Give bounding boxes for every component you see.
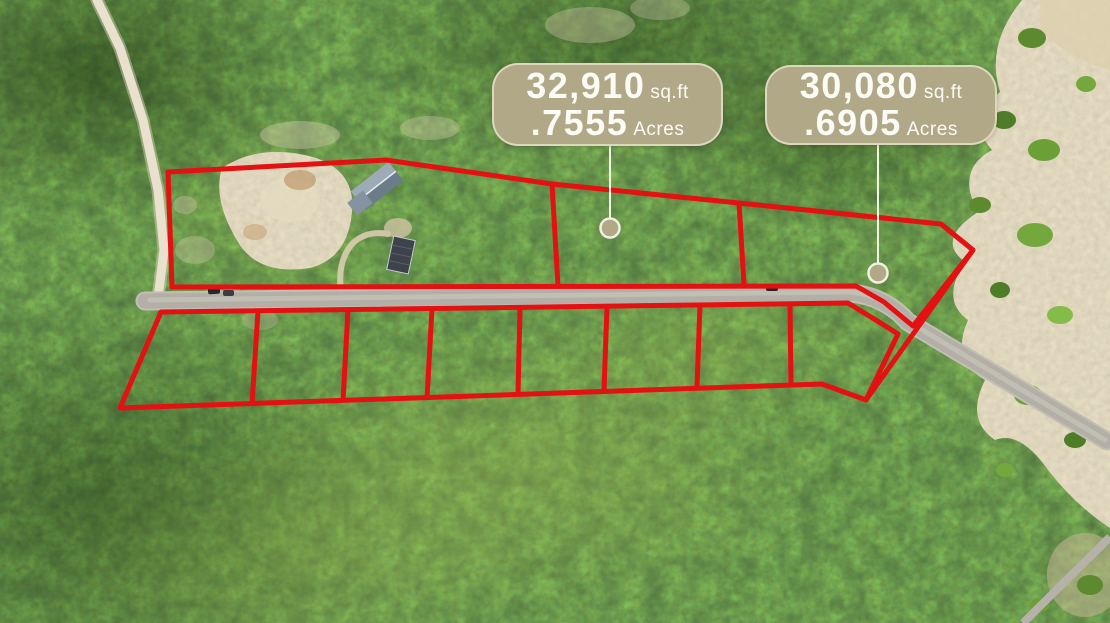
lot-1-acres-value: .7555	[531, 105, 629, 142]
dirt-mound	[243, 224, 267, 240]
yard-clearing	[384, 218, 412, 238]
lot-divider-south-7	[790, 304, 791, 384]
lot-size-label-1: 32,910 sq.ft .7555 Acres	[492, 63, 723, 146]
lot-1-acres-unit: Acres	[633, 120, 684, 139]
shrub	[1076, 76, 1096, 92]
shrub	[969, 197, 991, 213]
leader-dot-1	[601, 219, 620, 238]
lot-divider-south-4	[518, 308, 520, 393]
leader-dot-2	[869, 264, 888, 283]
lot-1-area-value: 32,910	[526, 68, 645, 105]
lot-divider-south-5	[604, 307, 607, 390]
shrub	[996, 463, 1014, 477]
lot-2-area-unit: sq.ft	[924, 83, 962, 102]
lot-1-area-unit: sq.ft	[650, 83, 688, 102]
lot-2-acres-unit: Acres	[907, 120, 958, 139]
lot-1-acres: .7555 Acres	[531, 105, 685, 142]
lot-2-acres-value: .6905	[804, 105, 902, 142]
car	[223, 290, 234, 296]
shrub	[990, 282, 1010, 298]
lot-2-acres: .6905 Acres	[804, 105, 958, 142]
shrub	[1047, 306, 1073, 324]
shrub	[1018, 28, 1046, 48]
lot-size-label-2: 30,080 sq.ft .6905 Acres	[765, 65, 997, 145]
lot-2-area: 30,080 sq.ft	[800, 68, 963, 105]
aerial-lot-map: 32,910 sq.ft .7555 Acres 30,080 sq.ft .6…	[0, 0, 1110, 623]
dirt-mound	[284, 170, 316, 190]
lot-1-area: 32,910 sq.ft	[526, 68, 689, 105]
shrub	[1017, 223, 1053, 247]
lot-divider-south-6	[697, 305, 700, 387]
shrub	[1028, 139, 1060, 161]
lot-2-area-value: 30,080	[800, 68, 919, 105]
shrub	[1077, 575, 1103, 595]
